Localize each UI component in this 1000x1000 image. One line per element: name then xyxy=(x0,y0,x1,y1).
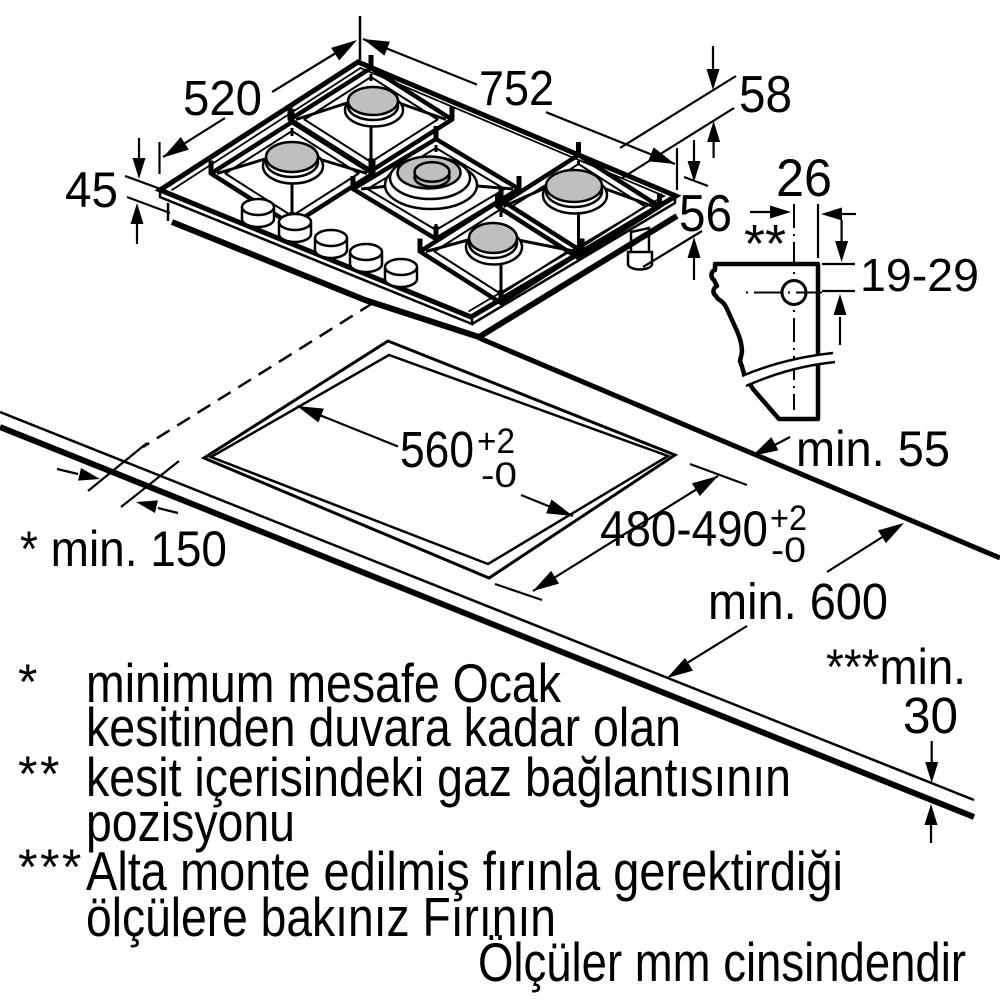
svg-text:45: 45 xyxy=(65,162,118,218)
svg-text:56: 56 xyxy=(679,185,732,243)
svg-text:* min. 150: * min. 150 xyxy=(20,521,227,577)
svg-text:min. 55: min. 55 xyxy=(796,421,950,477)
svg-text:**: ** xyxy=(744,214,786,274)
svg-text:480-490: 480-490 xyxy=(600,501,768,557)
svg-text:Ölçüler mm cinsindendir: Ölçüler mm cinsindendir xyxy=(478,931,966,993)
svg-text:-0: -0 xyxy=(771,531,806,570)
svg-text:26: 26 xyxy=(776,149,832,208)
svg-text:30: 30 xyxy=(903,687,958,744)
svg-text:**: ** xyxy=(18,746,62,802)
svg-text:-0: -0 xyxy=(481,456,517,495)
svg-text:520: 520 xyxy=(183,72,262,126)
svg-text:560: 560 xyxy=(400,421,474,478)
svg-text:752: 752 xyxy=(479,62,554,116)
svg-text:58: 58 xyxy=(739,66,792,124)
svg-text:min. 600: min. 600 xyxy=(708,573,888,630)
svg-text:19-29: 19-29 xyxy=(860,249,979,301)
svg-text:*: * xyxy=(18,654,40,710)
svg-text:***: *** xyxy=(18,839,84,895)
